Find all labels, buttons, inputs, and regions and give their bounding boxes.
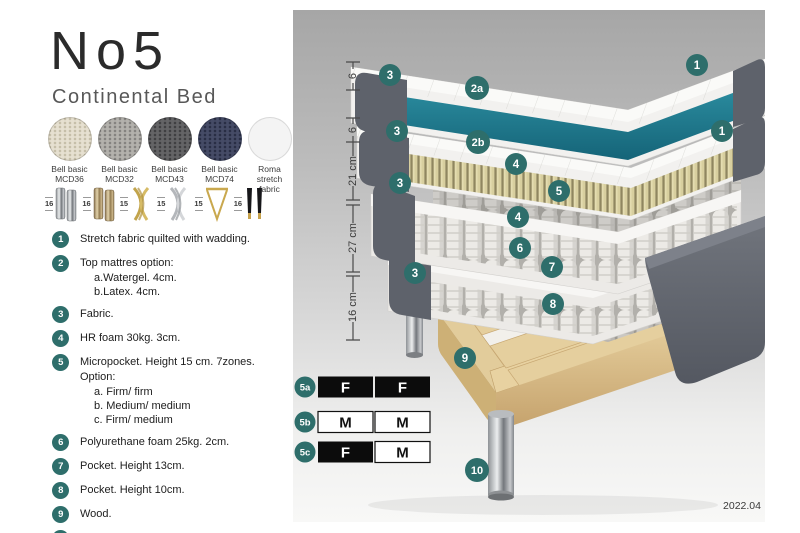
firmness-options-table: 5a F F 5b M M 5c F M (295, 377, 431, 463)
svg-text:7: 7 (549, 262, 555, 274)
leg-icon-cross-silver (166, 186, 190, 222)
dim-label: 6 (347, 127, 359, 133)
leg-icon-cross-gold (129, 186, 153, 222)
row-id: 5c (300, 448, 311, 459)
leg-height: 15 (194, 198, 202, 210)
fabric-swatch-circle (48, 117, 92, 161)
svg-text:1: 1 (719, 126, 726, 138)
leg-height: 15 (120, 198, 128, 210)
marker: 9 (454, 347, 476, 369)
dim-label: 6 (347, 73, 359, 79)
firmness-cell: M (396, 445, 409, 462)
legend-text: Pocket. Height 13cm. (80, 460, 185, 472)
marker: 10 (465, 458, 489, 482)
fabric-swatch-circle (248, 117, 292, 161)
leg-options: 16 16 15 (45, 186, 267, 222)
firmness-cell: M (396, 415, 409, 432)
legend-number-badge: 6 (52, 434, 69, 451)
fabric-swatch-circle (198, 117, 242, 161)
fabric-name: Bell basic (201, 164, 237, 174)
svg-text:3: 3 (387, 70, 393, 82)
leg-height: 16 (82, 198, 90, 210)
svg-text:4: 4 (515, 212, 522, 224)
legend-number-badge: 1 (52, 231, 69, 248)
fabric-swatch: Bell basicMCD43 (147, 117, 192, 194)
svg-text:2a: 2a (471, 83, 484, 95)
legend-number-badge: 8 (52, 482, 69, 499)
fabric-swatch-circle (98, 117, 142, 161)
marker: 4 (507, 206, 529, 228)
marker: 3 (404, 262, 426, 284)
fabric-code: MCD32 (105, 174, 134, 184)
fabric-name: Bell basic (151, 164, 187, 174)
marker: 2a (465, 76, 489, 100)
bed-front-leg (488, 410, 514, 501)
legend-number-badge: 2 (52, 255, 69, 272)
page-title: No5 (50, 20, 170, 82)
legend-item: 4 HR foam 30kg. 3cm. (52, 330, 290, 347)
legend-text: Pocket. Height 10cm. (80, 484, 185, 496)
construction-legend: 1 Stretch fabric quilted with wadding. 2… (52, 231, 290, 533)
svg-text:3: 3 (394, 126, 400, 138)
leg-height: 16 (45, 198, 53, 210)
dim-label: 16 cm (347, 292, 359, 322)
legend-number-badge: 4 (52, 330, 69, 347)
legend-subtext: a. Firm/ firm (80, 385, 290, 399)
legend-subtext: b.Latex. 4cm. (80, 285, 177, 299)
legend-text: Fabric. (80, 308, 114, 320)
legend-text: Stretch fabric quilted with wadding. (80, 233, 250, 245)
legend-item: 8 Pocket. Height 10cm. (52, 482, 290, 499)
fabric-swatches: Bell basicMCD36 Bell basicMCD32 Bell bas… (47, 117, 292, 194)
legend-item: 5 Micropocket. Height 15 cm. 7zones. Opt… (52, 354, 290, 427)
fabric-swatch: Bell basicMCD32 (97, 117, 142, 194)
legend-number-badge: 7 (52, 458, 69, 475)
fabric-name: Bell basic (51, 164, 87, 174)
legend-number-badge: 3 (52, 306, 69, 323)
version-label: 2022.04 (723, 500, 761, 512)
legend-number-badge: 9 (52, 506, 69, 523)
fabric-name: Roma (258, 164, 281, 174)
marker: 3 (386, 120, 408, 142)
dim-label: 21 cm (347, 156, 359, 186)
leg-option: 15 (120, 186, 153, 222)
legend-subtext: b. Medium/ medium (80, 399, 290, 413)
dim-label: 27 cm (347, 223, 359, 253)
firmness-cell: F (341, 445, 350, 462)
legend-text: Polyurethane foam 25kg. 2cm. (80, 436, 229, 448)
svg-text:6: 6 (517, 243, 523, 255)
leg-icon-tapered-black-gold (243, 186, 267, 222)
leg-height: 16 (234, 198, 242, 210)
legend-item: 1 Stretch fabric quilted with wadding. (52, 231, 290, 248)
fabric-swatch-circle (148, 117, 192, 161)
legend-text: Wood. (80, 508, 112, 520)
marker: 8 (542, 293, 564, 315)
fabric-code: MCD74 (205, 174, 234, 184)
leg-option: 16 (234, 186, 267, 222)
legend-text: HR foam 30kg. 3cm. (80, 332, 180, 344)
leg-option: 16 (82, 186, 115, 222)
svg-text:3: 3 (412, 268, 418, 280)
page-subtitle: Continental Bed (52, 86, 217, 109)
marker: 3 (379, 64, 401, 86)
svg-text:9: 9 (462, 353, 468, 365)
svg-text:8: 8 (550, 299, 557, 311)
svg-text:5: 5 (556, 186, 563, 198)
marker: 2b (466, 130, 490, 154)
marker: 5 (548, 180, 570, 202)
legend-item: 2 Top mattres option: a.Watergel. 4cm. b… (52, 255, 290, 299)
svg-text:4: 4 (513, 159, 520, 171)
legend-text: Micropocket. Height 15 cm. 7zones. Optio… (80, 356, 255, 383)
legend-text: Top mattres option: (80, 257, 174, 269)
svg-text:3: 3 (397, 178, 403, 190)
leg-icon-cylinder-brass (92, 186, 116, 222)
marker: 1 (711, 120, 733, 142)
leg-option: 16 (45, 186, 78, 222)
fabric-swatch: Bell basicMCD74 (197, 117, 242, 194)
leg-height: 15 (157, 198, 165, 210)
leg-option: 15 (157, 186, 190, 222)
info-panel: No5 Continental Bed Bell basicMCD36 Bell… (0, 0, 293, 533)
cutaway-diagram-panel: 6 6 21 cm 27 cm 16 cm 3 2a 1 3 2b 1 4 5 … (293, 10, 765, 522)
legend-item: 7 Pocket. Height 13cm. (52, 458, 290, 475)
row-id: 5a (300, 383, 311, 394)
product-sheet: No5 Continental Bed Bell basicMCD36 Bell… (0, 0, 800, 533)
svg-text:10: 10 (471, 465, 483, 477)
firmness-cell: F (398, 380, 407, 397)
firmness-cell: M (339, 415, 352, 432)
legend-subtext: a.Watergel. 4cm. (80, 271, 177, 285)
leg-icon-cylinder-silver (54, 186, 78, 222)
legend-number-badge: 5 (52, 354, 69, 371)
fabric-code: MCD36 (55, 174, 84, 184)
svg-text:2b: 2b (472, 137, 485, 149)
floor-shadow (368, 495, 718, 515)
row-id: 5b (299, 418, 310, 429)
marker: 4 (505, 153, 527, 175)
legend-item: 6 Polyurethane foam 25kg. 2cm. (52, 434, 290, 451)
legend-subtext: c. Firm/ medium (80, 413, 290, 427)
fabric-swatch: Romastretch fabric (247, 117, 292, 194)
marker: 6 (509, 237, 531, 259)
marker: 3 (389, 172, 411, 194)
legend-item: 3 Fabric. (52, 306, 290, 323)
fabric-code: MCD43 (155, 174, 184, 184)
leg-icon-hairpin-gold (204, 186, 230, 222)
marker: 1 (686, 54, 708, 76)
fabric-swatch: Bell basicMCD36 (47, 117, 92, 194)
legend-item: 9 Wood. (52, 506, 290, 523)
fabric-name: Bell basic (101, 164, 137, 174)
bed-cutaway-illustration: 6 6 21 cm 27 cm 16 cm 3 2a 1 3 2b 1 4 5 … (293, 10, 765, 522)
marker: 7 (541, 256, 563, 278)
leg-option: 15 (194, 186, 229, 222)
svg-text:1: 1 (694, 60, 701, 72)
firmness-cell: F (341, 380, 350, 397)
